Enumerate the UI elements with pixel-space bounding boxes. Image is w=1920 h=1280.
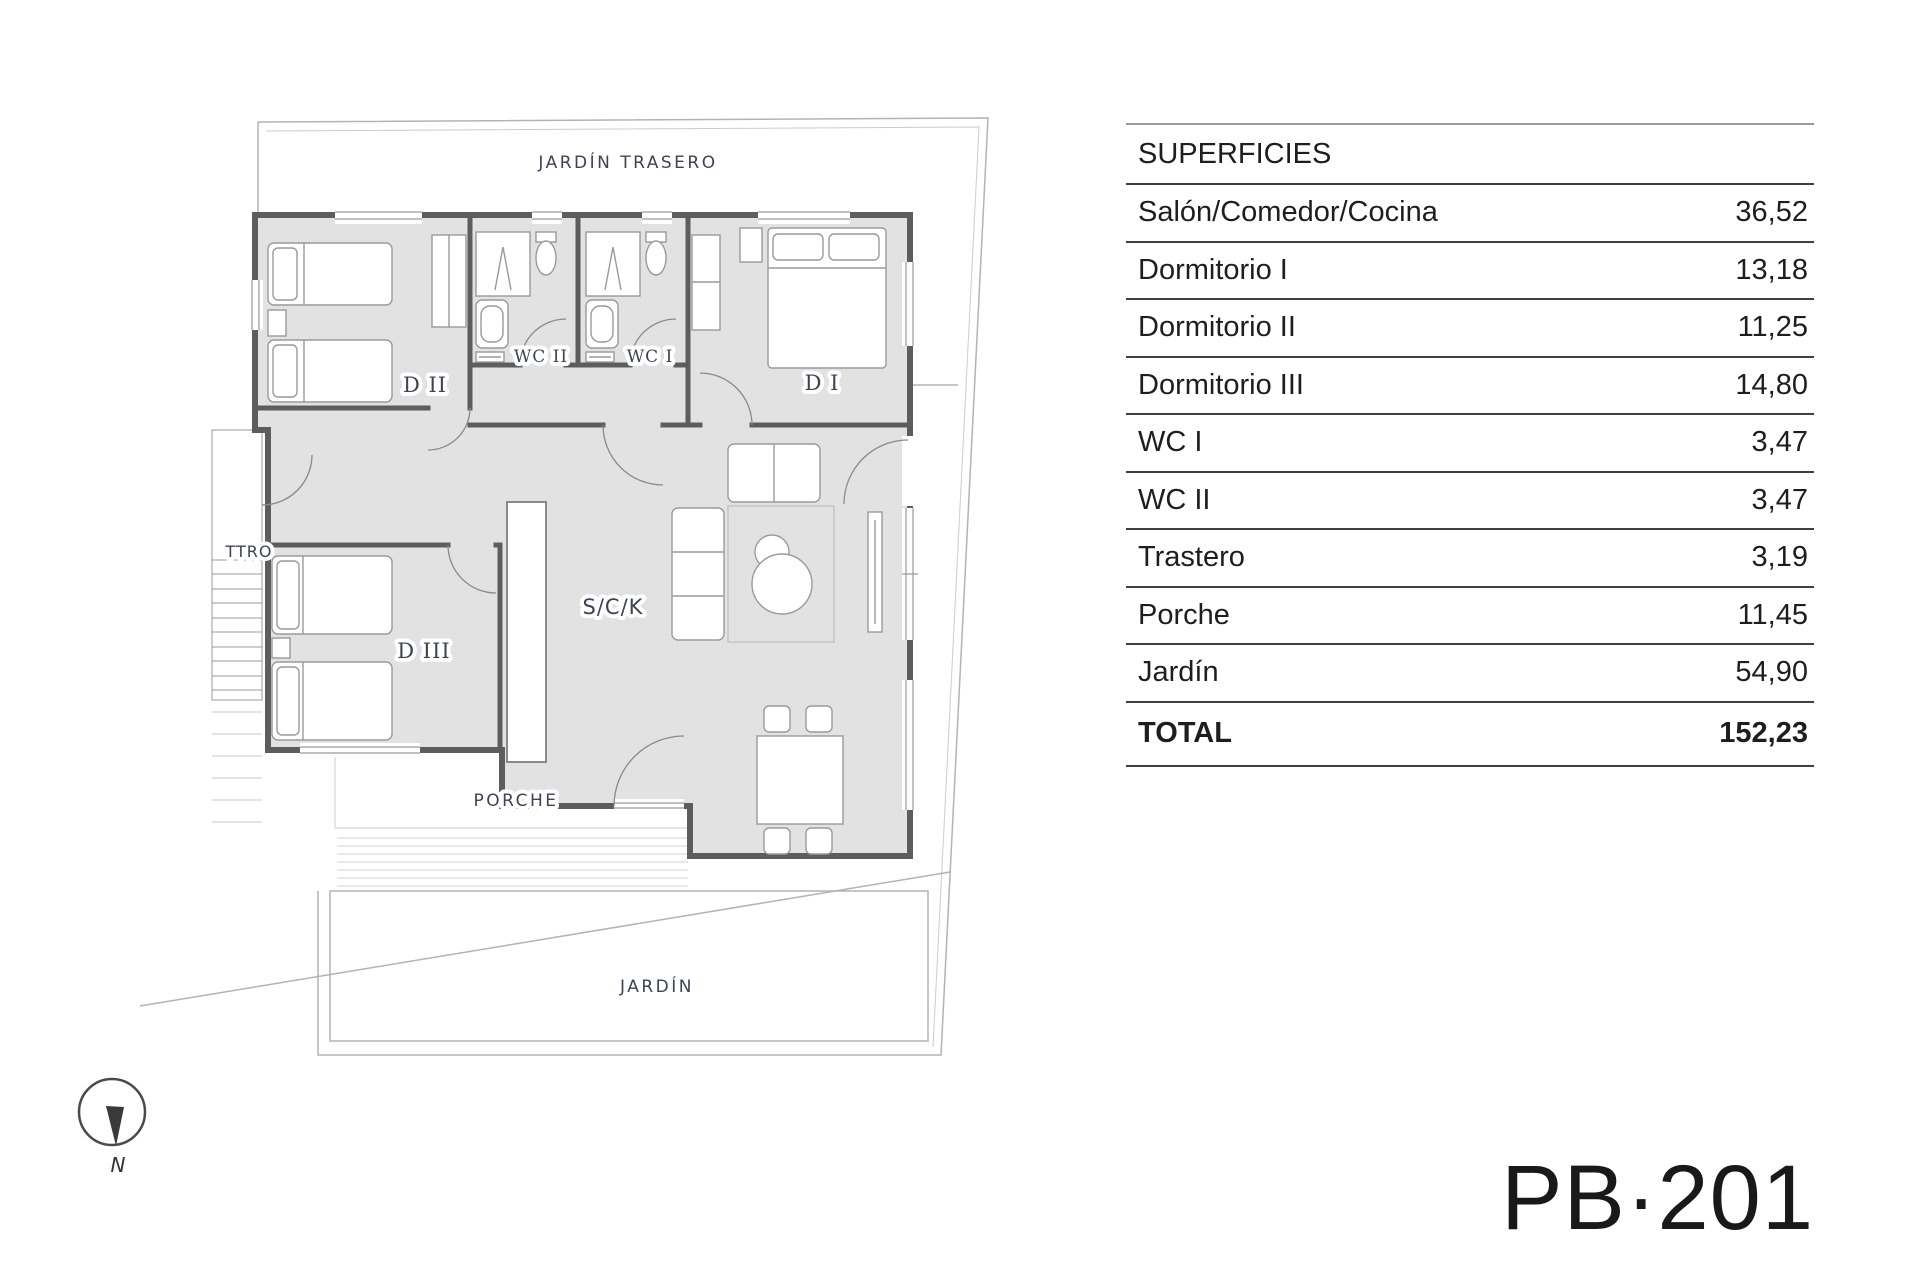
stairs	[212, 430, 262, 822]
table-row: WC I3,47	[1126, 415, 1814, 473]
area-value-cell: 14,80	[1735, 369, 1808, 402]
total-value-cell: 152,23	[1719, 717, 1808, 750]
label-bedroom3: D III	[397, 639, 450, 663]
area-value-cell: 3,47	[1752, 426, 1808, 459]
area-value-cell: 3,19	[1752, 541, 1808, 574]
area-value-cell: 11,25	[1738, 311, 1808, 344]
table-row: Trastero3,19	[1126, 530, 1814, 588]
table-row: WC II3,47	[1126, 473, 1814, 531]
plan-code: PB·201	[1501, 1146, 1814, 1251]
label-bedroom2: D II	[403, 373, 447, 397]
room-name-cell: WC I	[1138, 426, 1202, 459]
table-row: Dormitorio II11,25	[1126, 300, 1814, 358]
room-name-cell: Jardín	[1138, 656, 1219, 689]
table-row: Dormitorio I13,18	[1126, 243, 1814, 301]
room-name-cell: WC II	[1138, 484, 1211, 517]
area-value-cell: 13,18	[1735, 254, 1808, 287]
label-wc2: WC II	[514, 347, 568, 367]
surface-table: SUPERFICIES Salón/Comedor/Cocina36,52Dor…	[1126, 123, 1814, 767]
room-name-cell: Dormitorio III	[1138, 369, 1304, 402]
label-trastero: TTRO	[225, 542, 273, 561]
room-name-cell: Salón/Comedor/Cocina	[1138, 196, 1438, 229]
compass-icon: N	[79, 1079, 145, 1177]
label-porch: PORCHE	[474, 791, 559, 811]
label-garden: JARDÍN	[619, 975, 694, 997]
room-name-cell: Dormitorio I	[1138, 254, 1288, 287]
label-bedroom1: D I	[805, 371, 840, 395]
table-row: Porche11,45	[1126, 588, 1814, 646]
room-name-cell: Porche	[1138, 599, 1230, 632]
table-row: Jardín54,90	[1126, 645, 1814, 703]
table-row: Dormitorio III14,80	[1126, 358, 1814, 416]
total-label-cell: TOTAL	[1138, 717, 1232, 750]
surface-table-body: Salón/Comedor/Cocina36,52Dormitorio I13,…	[1126, 185, 1814, 703]
area-value-cell: 3,47	[1752, 484, 1808, 517]
compass-north-label: N	[111, 1153, 126, 1177]
room-name-cell: Trastero	[1138, 541, 1245, 574]
table-total-row: TOTAL 152,23	[1126, 703, 1814, 767]
table-header: SUPERFICIES	[1138, 138, 1331, 171]
label-garden-back: JARDÍN TRASERO	[537, 151, 717, 173]
area-value-cell: 54,90	[1735, 656, 1808, 689]
room-name-cell: Dormitorio II	[1138, 311, 1296, 344]
area-value-cell: 11,45	[1738, 599, 1808, 632]
label-salon: S/C/K	[583, 595, 644, 619]
table-row: Salón/Comedor/Cocina36,52	[1126, 185, 1814, 243]
label-wc1: WC I	[627, 347, 674, 367]
area-value-cell: 36,52	[1735, 196, 1808, 229]
